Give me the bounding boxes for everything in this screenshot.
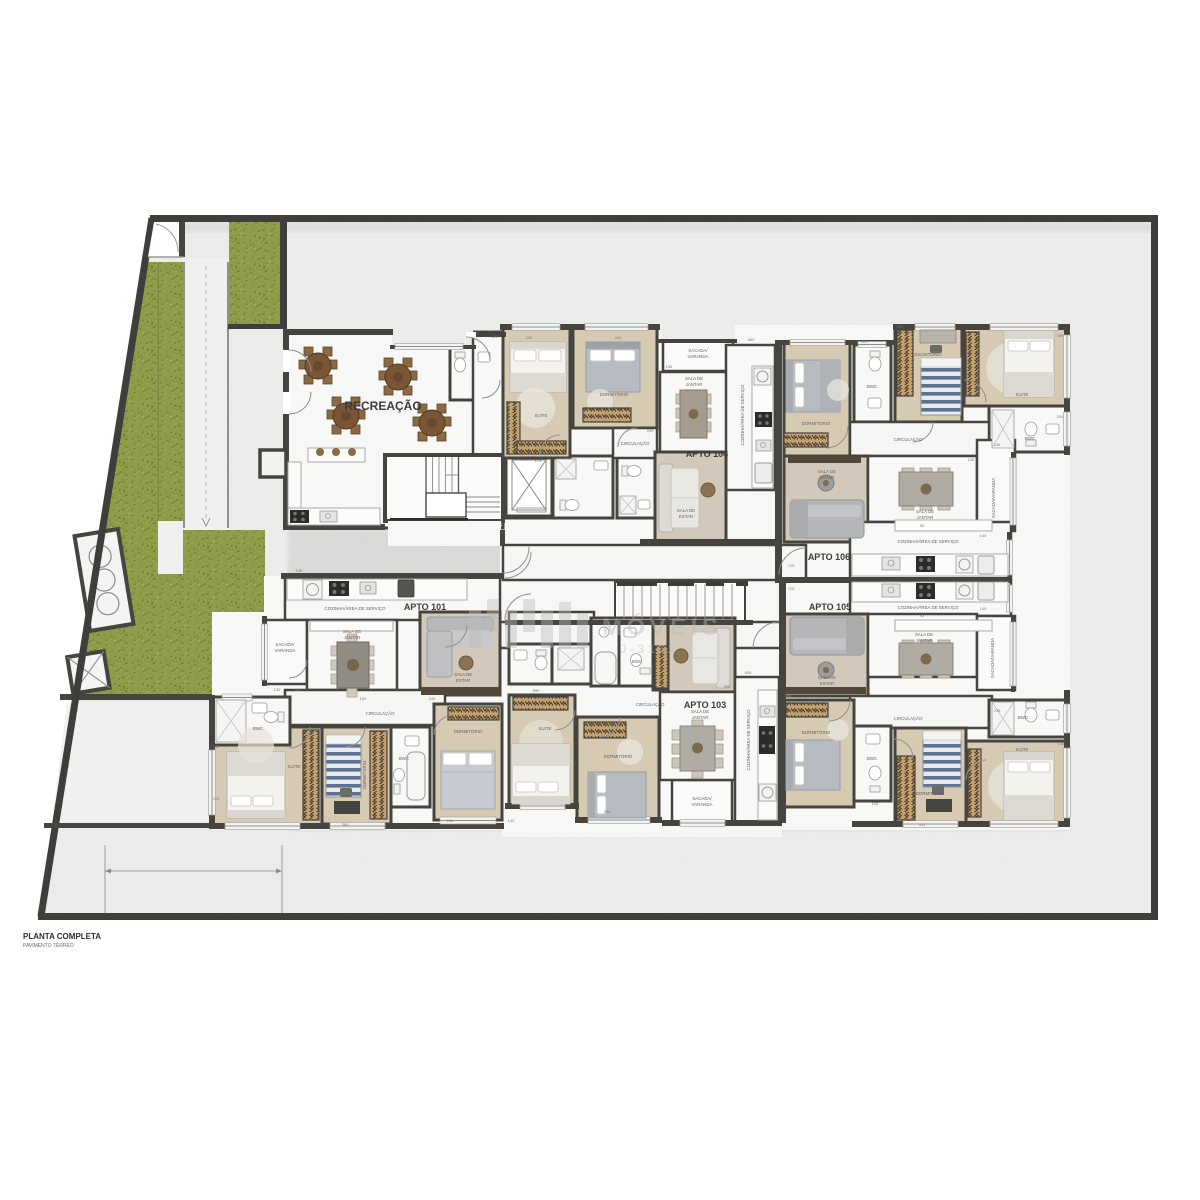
svg-text:BWC: BWC bbox=[632, 659, 642, 664]
svg-text:93: 93 bbox=[920, 523, 925, 528]
svg-text:SACADA/VARANDA: SACADA/VARANDA bbox=[991, 478, 996, 518]
svg-text:140: 140 bbox=[980, 606, 987, 611]
svg-text:140: 140 bbox=[980, 533, 987, 538]
svg-text:235: 235 bbox=[994, 708, 1001, 713]
svg-text:140: 140 bbox=[1058, 741, 1065, 746]
svg-text:210: 210 bbox=[897, 324, 904, 329]
svg-text:APTO 106: APTO 106 bbox=[808, 552, 850, 562]
svg-text:740: 740 bbox=[213, 744, 220, 749]
svg-text:205: 205 bbox=[213, 796, 220, 801]
svg-text:BWC: BWC bbox=[1025, 436, 1035, 441]
svg-text:450: 450 bbox=[718, 452, 725, 457]
svg-text:JANTAR: JANTAR bbox=[917, 515, 934, 520]
svg-text:130: 130 bbox=[968, 457, 975, 462]
svg-text:CIRCULAÇÃO: CIRCULAÇÃO bbox=[894, 716, 923, 721]
svg-text:890: 890 bbox=[533, 688, 540, 693]
svg-text:190: 190 bbox=[360, 696, 367, 701]
svg-text:390: 390 bbox=[724, 684, 731, 689]
svg-text:BWC: BWC bbox=[253, 726, 263, 731]
svg-text:COZINHA/ÁREA DE SERVIÇO: COZINHA/ÁREA DE SERVIÇO bbox=[740, 384, 745, 445]
svg-text:120: 120 bbox=[872, 801, 879, 806]
svg-text:DORMITÓRIO: DORMITÓRIO bbox=[600, 392, 629, 397]
svg-text:PAVIMENTO TÉRREO: PAVIMENTO TÉRREO bbox=[23, 942, 74, 949]
svg-text:360: 360 bbox=[342, 822, 349, 827]
svg-text:260: 260 bbox=[604, 809, 611, 814]
svg-text:ESTAR: ESTAR bbox=[820, 475, 834, 480]
svg-text:SUITE: SUITE bbox=[288, 764, 301, 769]
svg-text:DORMITÓRIO: DORMITÓRIO bbox=[802, 421, 831, 426]
svg-text:SALA DE: SALA DE bbox=[454, 672, 472, 677]
svg-text:658: 658 bbox=[785, 693, 792, 698]
svg-text:PLANTA COMPLETA: PLANTA COMPLETA bbox=[23, 932, 101, 941]
svg-text:DORMITÓRIO: DORMITÓRIO bbox=[454, 729, 483, 734]
svg-text:SALA DE: SALA DE bbox=[677, 508, 695, 513]
svg-text:COZINHA/ÁREA DE SERVIÇO: COZINHA/ÁREA DE SERVIÇO bbox=[325, 606, 386, 611]
svg-text:140: 140 bbox=[296, 568, 303, 573]
svg-text:240: 240 bbox=[615, 335, 622, 340]
svg-text:DORMITÓRIO: DORMITÓRIO bbox=[604, 754, 633, 759]
svg-text:BWC: BWC bbox=[1018, 715, 1028, 720]
svg-text:VARANDA: VARANDA bbox=[692, 802, 713, 807]
svg-text:COZINHA/ÁREA DE SERVIÇO: COZINHA/ÁREA DE SERVIÇO bbox=[746, 709, 751, 770]
svg-text:SUITE: SUITE bbox=[1016, 747, 1029, 752]
svg-text:240: 240 bbox=[647, 428, 654, 433]
svg-text:311: 311 bbox=[919, 822, 926, 827]
svg-text:BWC: BWC bbox=[867, 756, 877, 761]
svg-text:650: 650 bbox=[745, 670, 752, 675]
svg-text:CIRCULAÇÃO: CIRCULAÇÃO bbox=[894, 437, 923, 442]
svg-text:95: 95 bbox=[920, 613, 925, 618]
svg-text:BWC: BWC bbox=[867, 384, 877, 389]
svg-text:425: 425 bbox=[491, 334, 498, 339]
svg-text:240: 240 bbox=[526, 335, 533, 340]
svg-text:240: 240 bbox=[429, 696, 436, 701]
svg-text:235: 235 bbox=[994, 442, 1001, 447]
svg-text:SUITE: SUITE bbox=[539, 726, 552, 731]
svg-text:ESTAR: ESTAR bbox=[679, 514, 693, 519]
svg-text:340: 340 bbox=[1057, 333, 1064, 338]
svg-text:DORMITÓRIO: DORMITÓRIO bbox=[362, 760, 367, 789]
svg-text:SALA DE: SALA DE bbox=[818, 675, 836, 680]
svg-text:130: 130 bbox=[274, 687, 281, 692]
svg-text:MÓVEIS: MÓVEIS bbox=[602, 613, 722, 641]
svg-text:725: 725 bbox=[788, 586, 795, 591]
svg-text:SACADA/: SACADA/ bbox=[692, 796, 712, 801]
svg-text:VARANDA: VARANDA bbox=[275, 648, 296, 653]
svg-text:SACADA/: SACADA/ bbox=[688, 348, 708, 353]
svg-text:SALA DE: SALA DE bbox=[818, 469, 836, 474]
svg-text:COZINHA/ÁREA DE SERVIÇO: COZINHA/ÁREA DE SERVIÇO bbox=[898, 605, 959, 610]
svg-text:APTO 105: APTO 105 bbox=[809, 602, 851, 612]
svg-text:200: 200 bbox=[1057, 414, 1064, 419]
svg-text:SUITE: SUITE bbox=[1016, 392, 1029, 397]
svg-text:SACADA/VARANDA: SACADA/VARANDA bbox=[990, 638, 995, 678]
svg-text:JANTAR: JANTAR bbox=[916, 638, 933, 643]
svg-text:JANTAR: JANTAR bbox=[692, 715, 709, 720]
svg-text:JANTAR: JANTAR bbox=[344, 635, 361, 640]
svg-text:VARANDA: VARANDA bbox=[688, 354, 709, 359]
svg-text:BWC: BWC bbox=[399, 756, 409, 761]
svg-text:SALA DE: SALA DE bbox=[915, 632, 933, 637]
svg-text:135: 135 bbox=[666, 364, 673, 369]
svg-text:120: 120 bbox=[861, 339, 868, 344]
svg-text:SALA DE: SALA DE bbox=[691, 709, 709, 714]
svg-text:SALA DE: SALA DE bbox=[685, 376, 703, 381]
svg-text:APTO 101: APTO 101 bbox=[404, 602, 446, 612]
svg-text:ESTAR: ESTAR bbox=[820, 681, 834, 686]
svg-text:715: 715 bbox=[788, 563, 795, 568]
svg-text:CIRCULAÇÃO: CIRCULAÇÃO bbox=[621, 441, 650, 446]
svg-text:45: 45 bbox=[260, 608, 265, 613]
svg-text:CIRCULAÇÃO: CIRCULAÇÃO bbox=[366, 711, 395, 716]
svg-text:SACADA/: SACADA/ bbox=[275, 642, 295, 647]
svg-text:J-3162: J-3162 bbox=[620, 642, 678, 656]
svg-text:175: 175 bbox=[535, 458, 542, 463]
svg-text:180: 180 bbox=[294, 687, 301, 692]
svg-text:SALA DE: SALA DE bbox=[343, 629, 361, 634]
svg-text:ESTAR: ESTAR bbox=[456, 678, 470, 683]
svg-text:360: 360 bbox=[748, 337, 755, 342]
svg-text:COZINHA/ÁREA DE SERVIÇO: COZINHA/ÁREA DE SERVIÇO bbox=[898, 539, 959, 544]
svg-text:240: 240 bbox=[447, 818, 454, 823]
svg-text:JANTAR: JANTAR bbox=[686, 382, 703, 387]
svg-text:DORMITÓRIO: DORMITÓRIO bbox=[916, 791, 945, 796]
svg-text:CIRCULAÇÃO: CIRCULAÇÃO bbox=[636, 702, 665, 707]
svg-text:RECREAÇÃO: RECREAÇÃO bbox=[344, 398, 421, 413]
svg-text:SUITE: SUITE bbox=[535, 413, 548, 418]
svg-text:140: 140 bbox=[508, 818, 515, 823]
svg-text:ESCRITÓRIO: ESCRITÓRIO bbox=[914, 352, 942, 357]
svg-text:SALA DE: SALA DE bbox=[916, 509, 934, 514]
svg-text:DORMITÓRIO: DORMITÓRIO bbox=[802, 730, 831, 735]
